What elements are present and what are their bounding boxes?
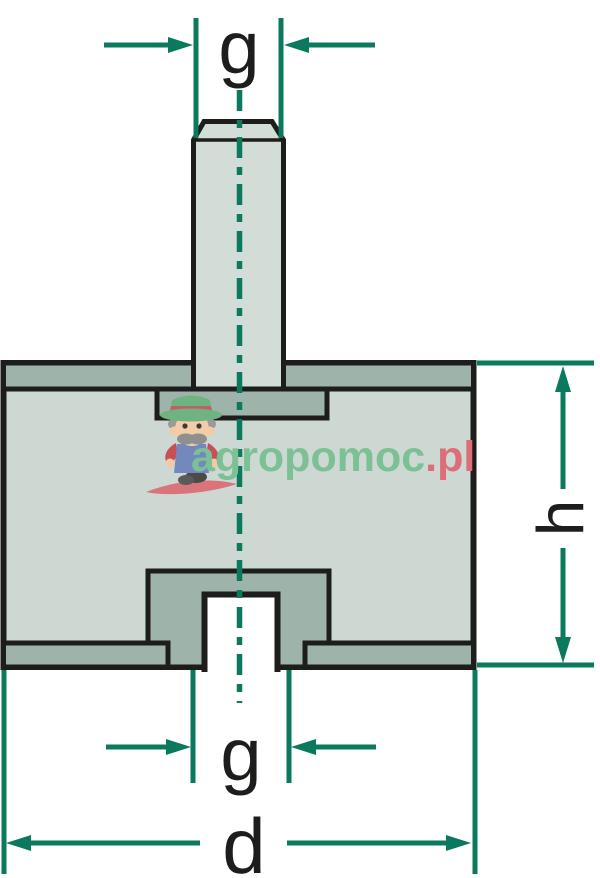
diagram-canvas: g h g d agropomoc.pl [0, 0, 600, 878]
bottom-plate-right [305, 643, 474, 667]
bobbin-mount-drawing [0, 0, 600, 878]
dimension-d [4, 670, 475, 874]
threaded-stud [194, 122, 284, 392]
bottom-plate-left [4, 643, 169, 667]
dimension-h [477, 363, 594, 665]
